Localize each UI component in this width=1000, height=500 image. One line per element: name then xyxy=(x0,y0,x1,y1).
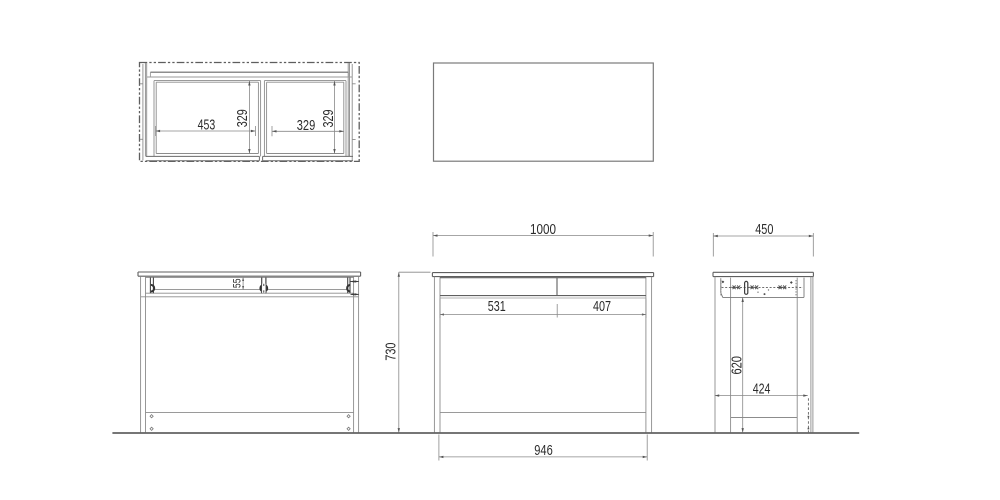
svg-text:730: 730 xyxy=(383,343,399,361)
svg-text:946: 946 xyxy=(534,443,553,459)
svg-text:1000: 1000 xyxy=(530,222,556,238)
svg-text:424: 424 xyxy=(753,381,771,397)
svg-text:450: 450 xyxy=(755,222,773,238)
svg-text:453: 453 xyxy=(198,117,216,133)
svg-text:329: 329 xyxy=(297,118,316,134)
svg-text:329: 329 xyxy=(321,110,337,128)
svg-text:620: 620 xyxy=(729,356,745,375)
svg-text:55: 55 xyxy=(231,279,243,289)
svg-text:407: 407 xyxy=(593,299,611,315)
svg-text:531: 531 xyxy=(488,299,506,315)
svg-text:329: 329 xyxy=(235,109,251,127)
